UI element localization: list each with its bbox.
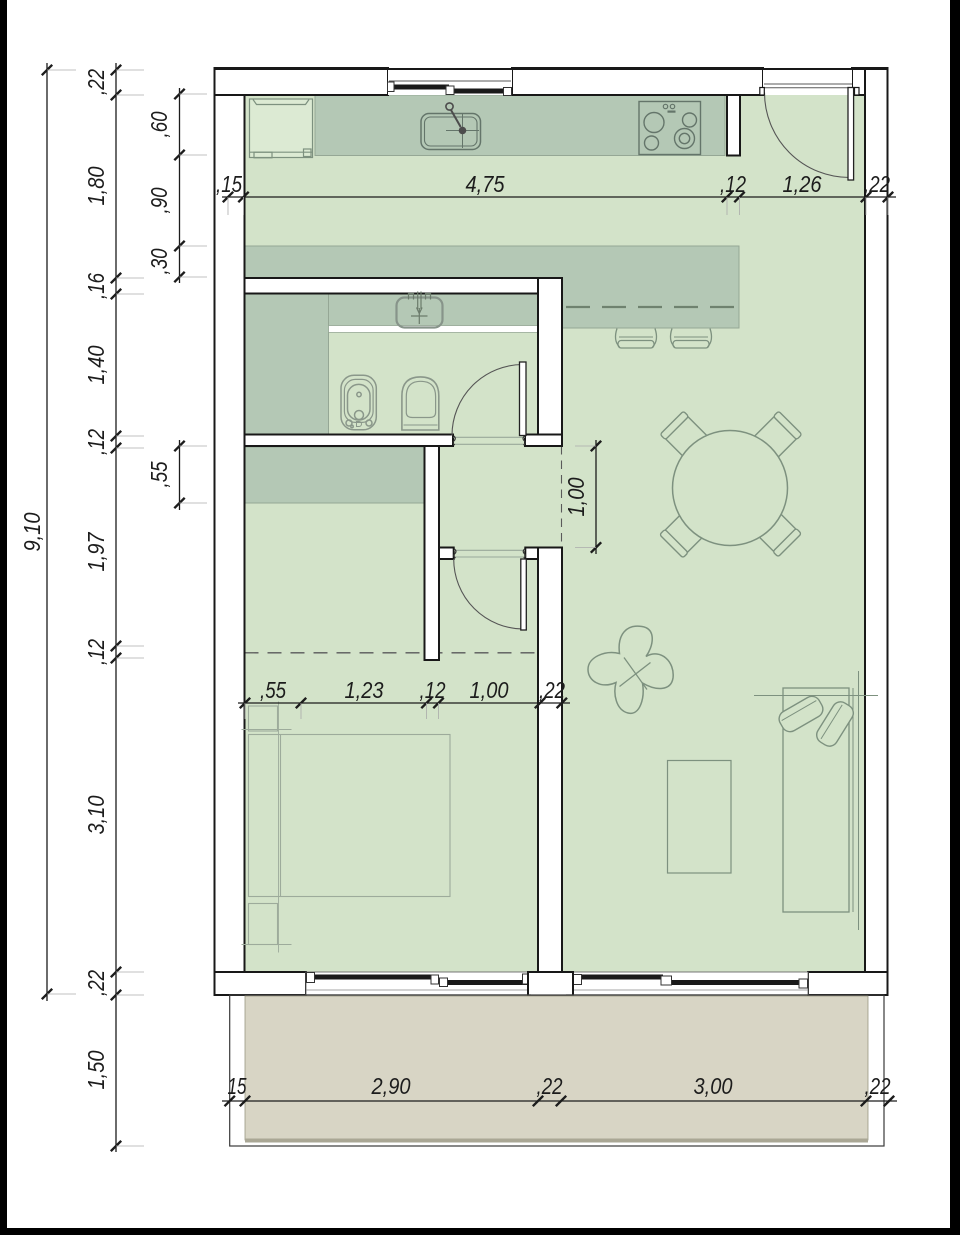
svg-text:,12: ,12 bbox=[83, 639, 109, 665]
svg-text:4,75: 4,75 bbox=[466, 171, 505, 197]
svg-text:9,10: 9,10 bbox=[19, 512, 45, 551]
svg-text:1,50: 1,50 bbox=[83, 1050, 109, 1089]
svg-text:,12: ,12 bbox=[420, 677, 446, 703]
svg-text:,55: ,55 bbox=[260, 677, 286, 703]
svg-text:1,40: 1,40 bbox=[83, 345, 109, 384]
svg-text:,60: ,60 bbox=[146, 111, 172, 137]
svg-text:,30: ,30 bbox=[146, 248, 172, 274]
svg-text:,22: ,22 bbox=[539, 677, 565, 703]
svg-text:1,23: 1,23 bbox=[345, 677, 384, 703]
svg-text:,22: ,22 bbox=[537, 1073, 563, 1099]
svg-text:,12: ,12 bbox=[83, 429, 109, 455]
svg-text:2,90: 2,90 bbox=[371, 1073, 411, 1099]
svg-text:,22: ,22 bbox=[865, 1073, 891, 1099]
svg-text:,15: ,15 bbox=[216, 171, 242, 197]
svg-text:1,26: 1,26 bbox=[783, 171, 822, 197]
svg-text:3,10: 3,10 bbox=[83, 795, 109, 834]
svg-text:,22: ,22 bbox=[83, 970, 109, 996]
svg-text:1,00: 1,00 bbox=[470, 677, 509, 703]
svg-text:1,97: 1,97 bbox=[83, 531, 109, 571]
svg-text:,12: ,12 bbox=[720, 171, 746, 197]
svg-text:,22: ,22 bbox=[83, 69, 109, 95]
svg-text:,55: ,55 bbox=[146, 461, 172, 487]
svg-text:1,80: 1,80 bbox=[83, 166, 109, 205]
svg-text:1,00: 1,00 bbox=[563, 477, 589, 516]
svg-text:15: 15 bbox=[228, 1073, 247, 1099]
svg-text:,22: ,22 bbox=[864, 171, 890, 197]
svg-text:3,00: 3,00 bbox=[694, 1073, 733, 1099]
svg-text:,16: ,16 bbox=[83, 273, 109, 299]
svg-text:,90: ,90 bbox=[146, 187, 172, 213]
